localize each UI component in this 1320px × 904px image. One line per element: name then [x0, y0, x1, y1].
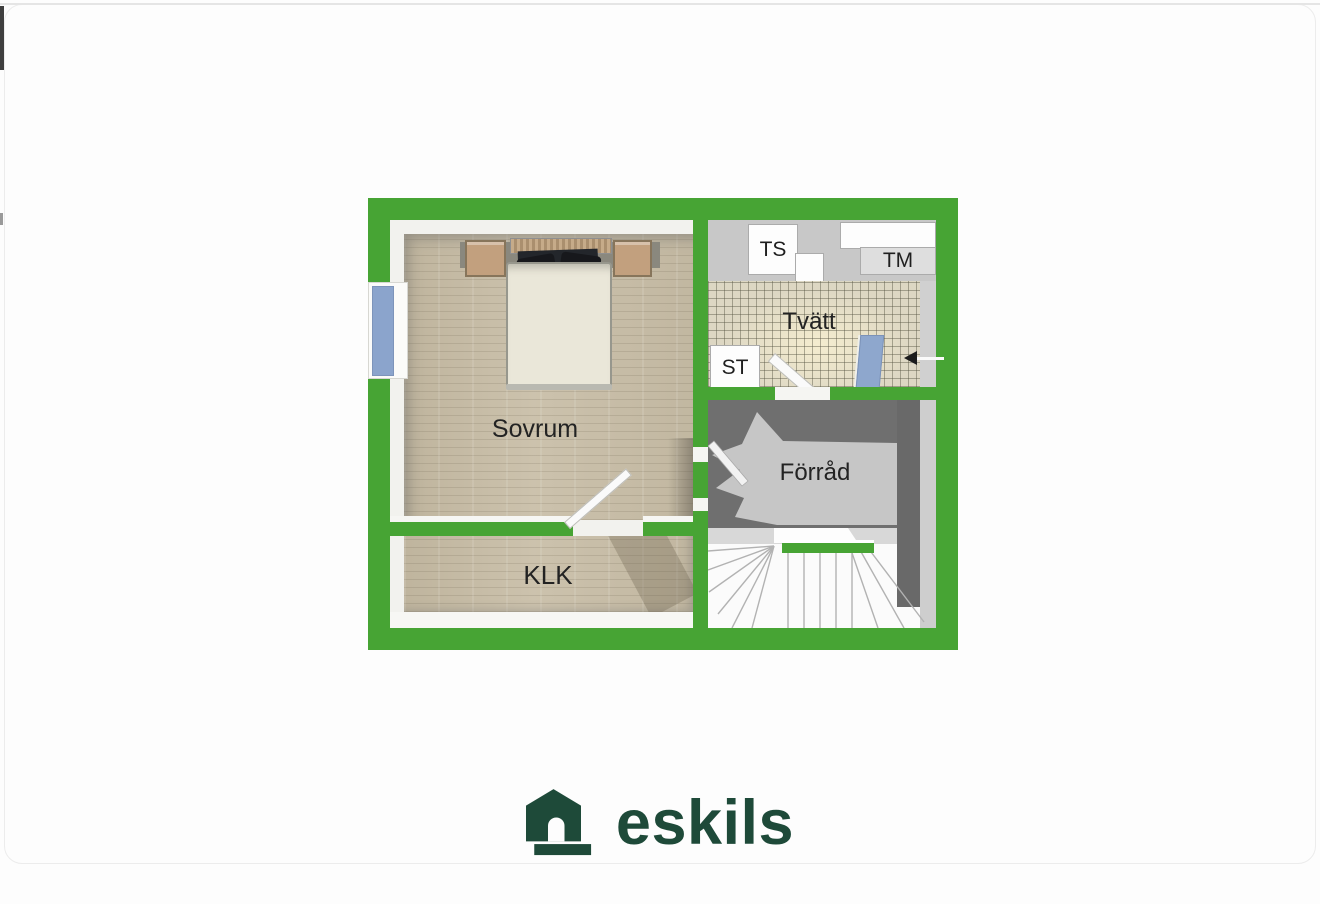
washing-machine-label: TM — [883, 249, 913, 273]
room-label-tvatt: Tvätt — [749, 308, 869, 336]
page: TS TM ST — [0, 0, 1320, 904]
floor-plan: TS TM ST — [368, 198, 958, 650]
brand-footer: eskils — [0, 786, 1320, 860]
top-edge-line — [0, 3, 1320, 5]
divider-wall-right — [643, 522, 693, 536]
brand-name: eskils — [616, 792, 794, 855]
closet-wall-lining — [390, 612, 693, 628]
wall-shadow — [668, 438, 693, 520]
stair-handrail — [782, 543, 874, 553]
bed-footboard — [506, 384, 612, 390]
laundry-blue-door — [856, 335, 885, 388]
laundry-right-ledge — [920, 281, 936, 387]
house-logo-icon — [526, 786, 592, 860]
drying-cabinet: TS — [748, 224, 798, 275]
nightstand-left — [465, 240, 506, 277]
nightstand-right — [613, 240, 652, 277]
washing-machine: TM — [860, 247, 936, 275]
drying-cabinet-label: TS — [760, 238, 787, 262]
cleaning-cabinet-label: ST — [722, 356, 749, 380]
left-edge-artifact — [0, 6, 4, 70]
center-wall — [693, 220, 708, 628]
laundry-shelf — [840, 222, 936, 249]
laundry-door-gap — [775, 387, 830, 400]
left-edge-artifact-small — [0, 213, 3, 225]
entry-arrow-icon — [904, 351, 917, 365]
storage-and-stairs — [708, 400, 936, 628]
center-wall-door-gap-bottom — [693, 498, 708, 511]
room-label-sovrum: Sovrum — [475, 415, 595, 444]
room-label-forrad: Förråd — [755, 459, 875, 487]
cleaning-cabinet: ST — [710, 345, 760, 391]
center-wall-door-gap-top — [693, 447, 708, 462]
divider-wall-left — [390, 522, 573, 536]
entry-line — [916, 357, 944, 360]
laundry-cabinet-small — [795, 253, 824, 282]
room-label-klk: KLK — [488, 560, 608, 591]
bed-duvet — [506, 262, 612, 388]
window-pane — [372, 286, 394, 376]
